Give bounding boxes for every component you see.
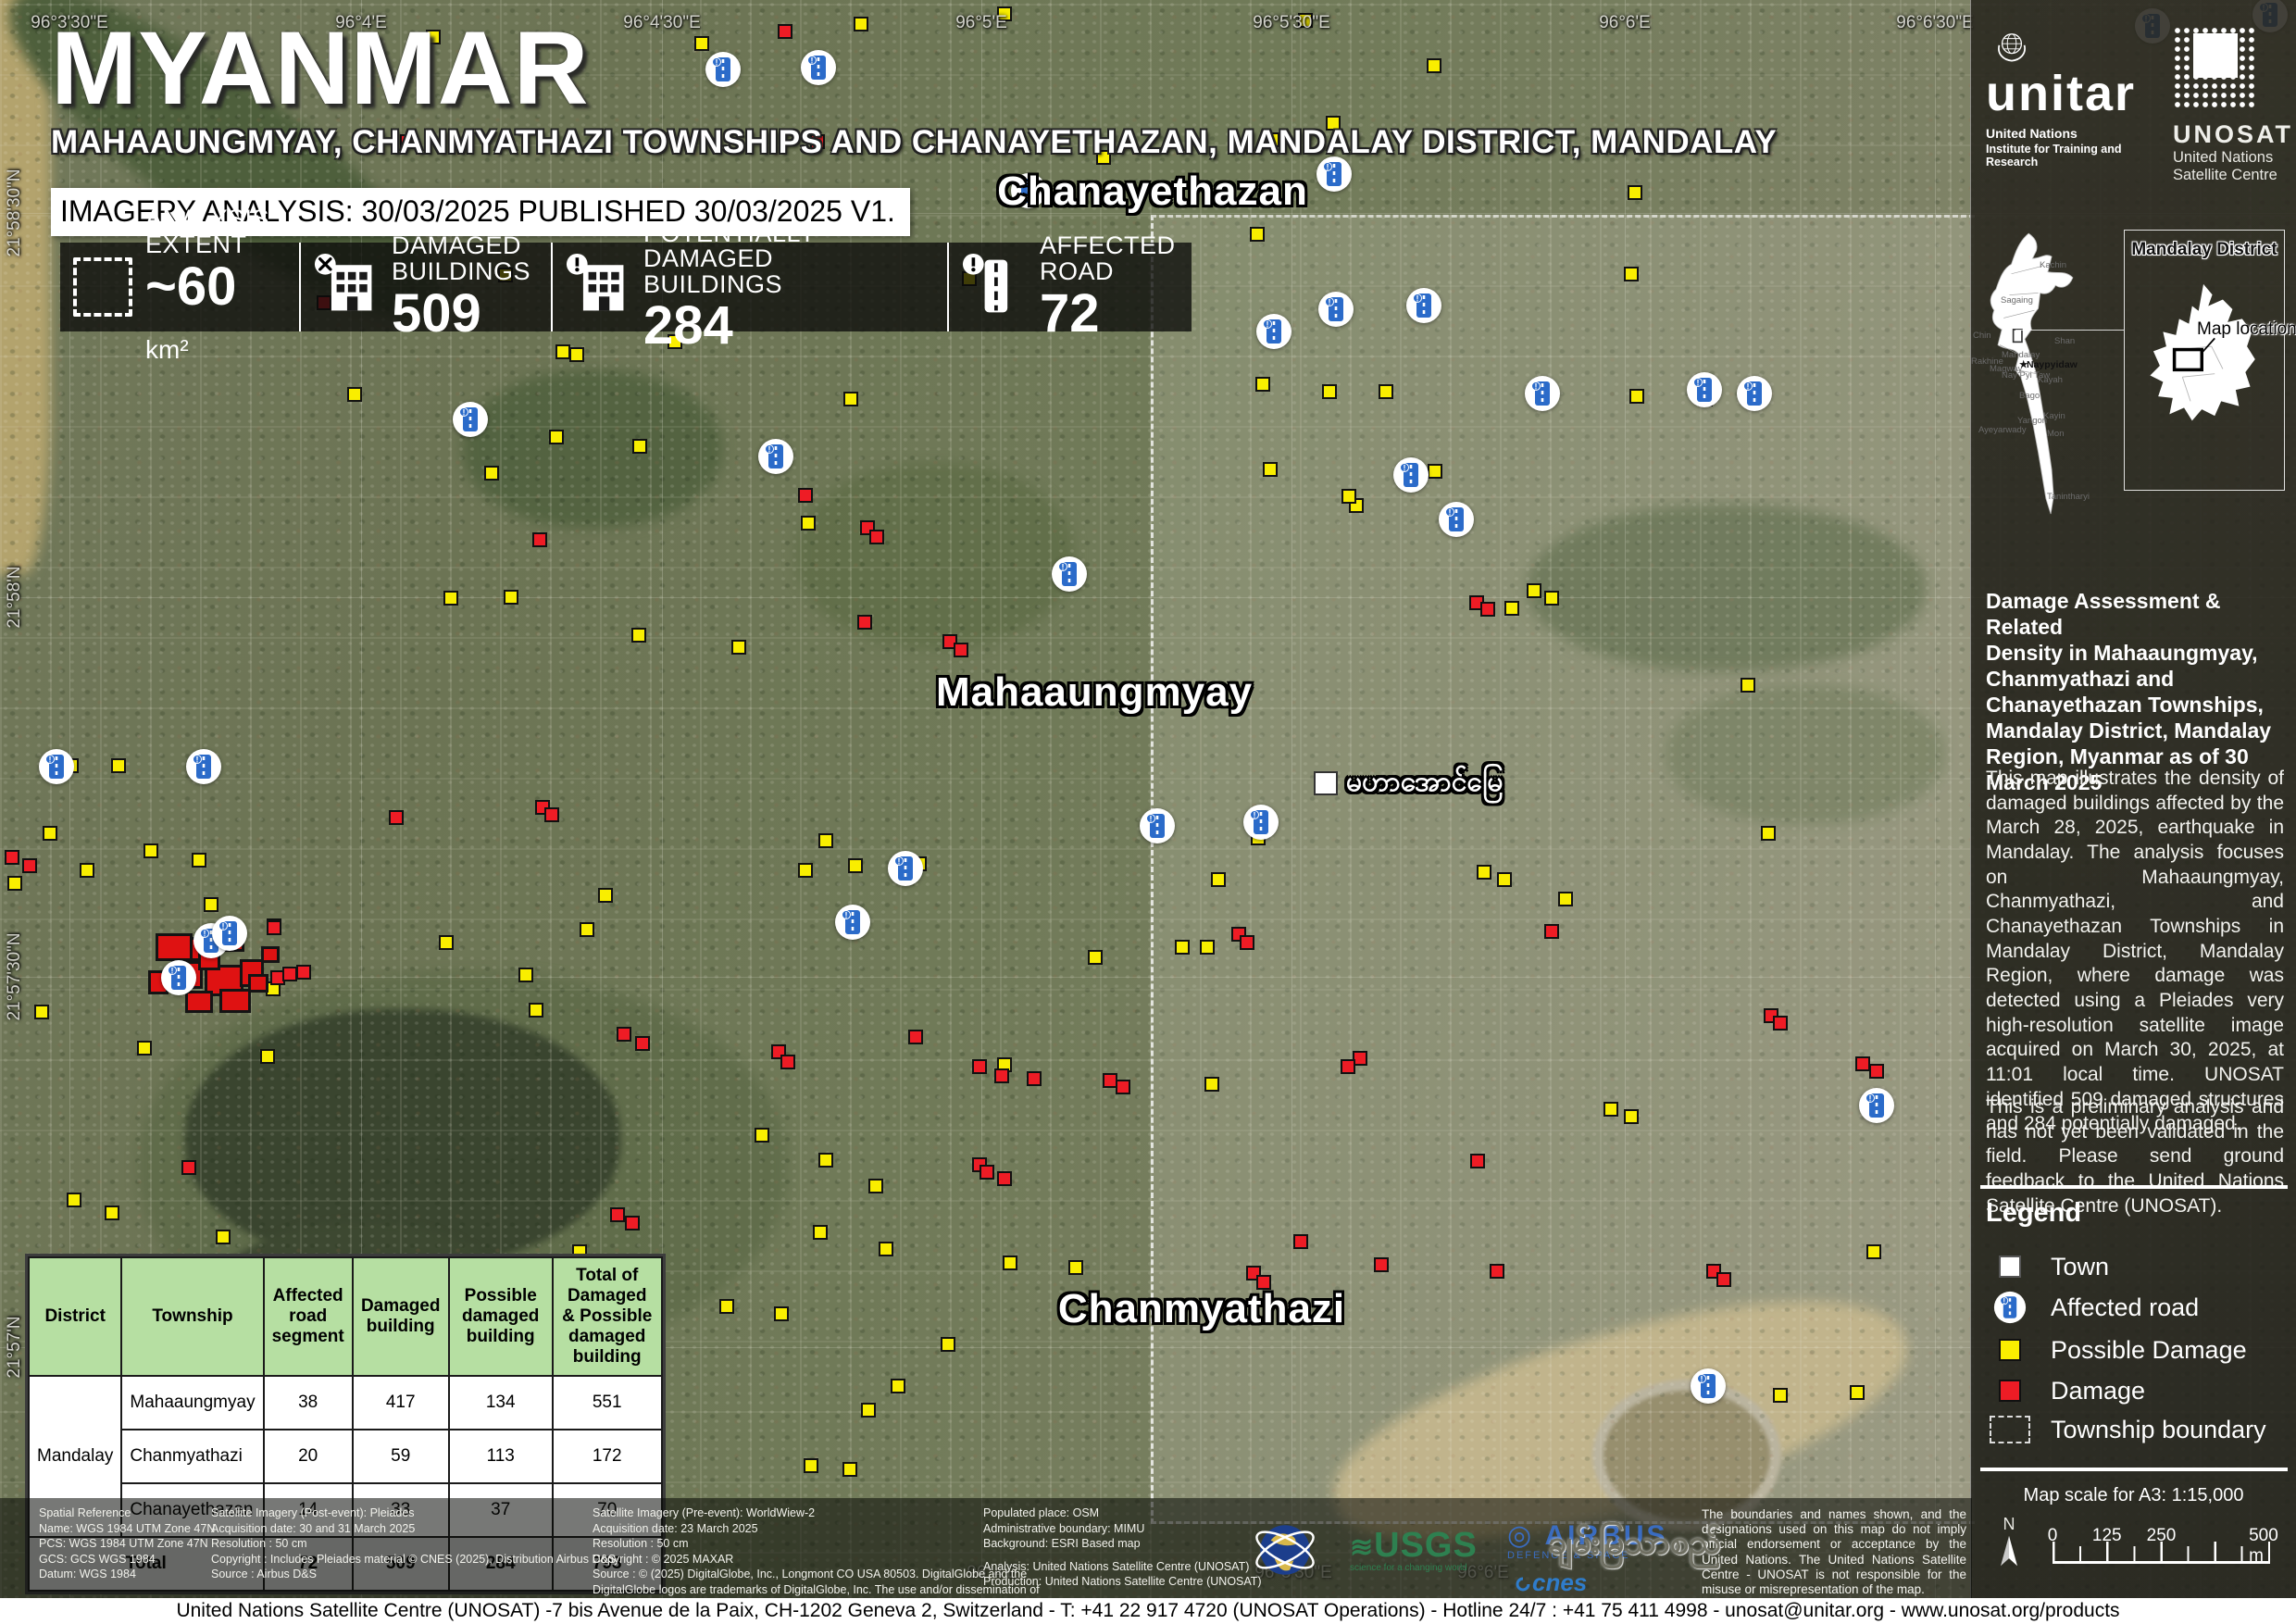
region-label: Tanintharyi <box>2047 492 2090 502</box>
stat-value: ~60 km² <box>145 260 286 368</box>
stat-label: EXTENT <box>145 232 286 258</box>
stats-bar: ANALYSIS EXTENT ~60 km² DAMAGED BUILDING… <box>60 243 1192 331</box>
credit-line <box>983 1552 1391 1559</box>
damage-marker <box>5 850 19 865</box>
legend-label: Possible Damage <box>2051 1336 2247 1365</box>
svg-text:!: ! <box>2003 1297 2005 1305</box>
possible-damage-marker <box>719 1299 734 1314</box>
credit-column: Satellite Imagery (Post-event): Pleiades… <box>211 1505 577 1582</box>
region-label: Sagaing <box>2001 295 2033 306</box>
possible-damage-marker <box>484 466 499 481</box>
damage-marker <box>1480 602 1495 617</box>
disclaimer-text: The boundaries and names shown, and the … <box>1702 1507 1966 1597</box>
stat-label: ROAD <box>1040 259 1176 285</box>
possible-damage-marker <box>1322 384 1337 399</box>
stat-analysis-extent: ANALYSIS EXTENT ~60 km² <box>60 243 299 331</box>
damage-marker <box>997 1171 1012 1186</box>
affected-road-marker: ! <box>1686 371 1723 408</box>
credit-column: Spatial ReferenceName: WGS 1984 UTM Zone… <box>39 1505 206 1582</box>
svg-text:!: ! <box>1404 464 1406 473</box>
cnes-logo: cnes <box>1514 1568 1587 1597</box>
region-label: Kayin <box>2043 411 2065 421</box>
damage-marker <box>267 920 281 935</box>
affected-road-marker: ! <box>1392 456 1429 493</box>
column-header: Township <box>121 1257 263 1376</box>
svg-text:!: ! <box>845 911 848 920</box>
svg-text:!: ! <box>1150 815 1153 824</box>
possible-damage-marker <box>1558 892 1573 906</box>
damage-marker <box>869 530 884 544</box>
credit-line: Source : Airbus D&S <box>211 1567 577 1582</box>
region-label: Mon <box>2047 429 2064 439</box>
legend-item-possible-damage: Possible Damage <box>1990 1331 2247 1368</box>
value-cell: 134 <box>449 1376 553 1430</box>
usgs-tagline: science for a changing world <box>1350 1563 1478 1573</box>
damage-cluster-polygon <box>156 933 193 961</box>
column-header: Damaged building <box>353 1257 449 1376</box>
possible-damage-marker <box>804 1458 818 1473</box>
un-emblem-icon <box>1990 26 2034 75</box>
possible-damage-marker <box>443 591 458 606</box>
damage-marker <box>1341 1059 1355 1074</box>
svg-text:!: ! <box>1329 298 1331 307</box>
affected-road-marker: ! <box>1524 375 1561 412</box>
unitar-line1: United Nations <box>1986 126 2162 141</box>
possible-damage-marker <box>204 897 218 912</box>
possible-damage-marker <box>798 863 813 878</box>
burmese-place-watermark: ချမ်းမြသာစည် <box>1548 1520 1721 1570</box>
affected-road-marker: ! <box>211 915 248 952</box>
damage-marker <box>1773 1016 1788 1031</box>
map-scale-label: Map scale for A3: 1:15,000 <box>1971 1485 2296 1506</box>
damage-marker <box>980 1165 994 1180</box>
svg-text:!: ! <box>463 408 466 418</box>
possible-damage-marker <box>891 1379 905 1393</box>
damage-marker <box>532 532 547 547</box>
damage-marker <box>857 615 872 630</box>
damage-marker <box>617 1027 631 1042</box>
value-cell: 113 <box>449 1430 553 1483</box>
possible-damage-marker <box>216 1230 231 1244</box>
column-header: Total of Damaged & Possible damaged buil… <box>553 1257 662 1376</box>
credit-line: Resolution : 50 cm <box>211 1536 577 1552</box>
possible-damage-marker <box>842 1462 857 1477</box>
legend-label: Affected road <box>2051 1293 2199 1322</box>
damage-marker <box>1116 1080 1130 1094</box>
stat-value: 72 <box>1040 287 1176 341</box>
affected-road-marker: ! <box>1255 313 1292 350</box>
svg-text:!: ! <box>49 756 52 765</box>
damage-marker <box>1293 1234 1308 1249</box>
damage-marker <box>780 1055 795 1069</box>
damage-cluster-polygon <box>219 989 251 1013</box>
township-cell: Chanmyathazi <box>121 1430 263 1483</box>
district-inset-map: Mandalay District Map location <box>2124 230 2285 491</box>
legend-item-damage: Damage <box>1990 1372 2145 1409</box>
damage-marker <box>1716 1272 1731 1287</box>
possible-damage-marker <box>1477 865 1491 880</box>
possible-damage-marker <box>43 826 57 841</box>
township-boundary-swatch <box>1990 1416 2030 1443</box>
svg-text:!: ! <box>1062 563 1065 572</box>
credit-line: Administrative boundary: MIMU <box>983 1521 1391 1537</box>
table-row: Chanmyathazi 20 59 113 172 <box>29 1430 662 1483</box>
possible-damage-marker <box>1544 591 1559 606</box>
possible-damage-marker <box>941 1337 955 1352</box>
town-swatch <box>1999 1255 2021 1278</box>
graticule-line <box>1291 0 1292 1624</box>
possible-damage-marker <box>879 1242 893 1256</box>
svg-text:!: ! <box>196 756 199 765</box>
possible-damage-marker <box>861 1403 876 1418</box>
svg-text:!: ! <box>1747 382 1750 392</box>
affected-road-marker: ! <box>1690 1368 1727 1405</box>
damage-marker <box>296 965 311 980</box>
stat-value: 509 <box>392 287 530 341</box>
possible-damage-marker <box>1527 583 1541 598</box>
svg-text:!: ! <box>222 922 225 931</box>
graticule-line <box>1935 0 1936 1624</box>
possible-damage-marker <box>598 888 613 903</box>
legend-item-township-boundary: Township boundary <box>1990 1411 2266 1448</box>
page-title: MYANMAR <box>51 17 1777 120</box>
svg-text:!: ! <box>171 967 174 976</box>
stat-damaged-buildings: DAMAGED BUILDINGS 509 <box>299 243 551 331</box>
possible-damage-marker <box>755 1128 769 1143</box>
possible-damage-marker <box>1497 872 1512 887</box>
capital-star-icon: ★ <box>2019 359 2028 370</box>
credit-line: Spatial Reference <box>39 1505 206 1521</box>
damage-marker <box>181 1160 196 1175</box>
affected-road-marker: ! <box>452 401 489 438</box>
unitar-logo: unitar United Nations Institute for Trai… <box>1986 69 2162 169</box>
un-globe-logo <box>1252 1517 1318 1588</box>
possible-damage-marker <box>1761 826 1776 841</box>
possible-damage-marker <box>1629 389 1644 404</box>
info-panel: unitar United Nations Institute for Trai… <box>1970 0 2296 1598</box>
graticule-line <box>1625 0 1626 1624</box>
unosat-line1: United Nations <box>2173 149 2290 167</box>
potentially-damaged-building-icon <box>566 253 630 322</box>
possible-damage-marker <box>80 863 94 878</box>
credit-line: Acquisition date: 30 and 31 March 2025 <box>211 1521 577 1537</box>
stat-label: AFFECTED <box>1040 233 1176 259</box>
north-label: N <box>1999 1515 2019 1534</box>
report-title: Damage Assessment & Related Density in M… <box>1986 588 2284 795</box>
value-cell: 172 <box>553 1430 662 1483</box>
affected-road-marker: ! <box>834 904 871 941</box>
possible-damage-marker <box>260 1049 275 1064</box>
possible-damage-marker <box>555 344 570 359</box>
damage-marker <box>1855 1056 1870 1071</box>
affected-road-marker: ! <box>1736 375 1773 412</box>
longitude-label: 96°6'30"E <box>1896 13 1973 33</box>
possible-damage-marker <box>1624 1109 1639 1124</box>
country-inset-labels: KachinSagaingChinShanMandalayMagwayNaypy… <box>1971 218 2101 556</box>
cnes-wordmark: cnes <box>1514 1568 1587 1596</box>
graticule-line <box>0 597 2296 598</box>
credit-column: Populated place: OSMAdministrative bound… <box>983 1505 1391 1590</box>
affected-road-marker: ! <box>160 959 197 996</box>
latitude-label: 21°58'N <box>5 566 25 628</box>
value-cell: 417 <box>353 1376 449 1430</box>
possible-damage-marker <box>580 922 594 937</box>
possible-damage-marker <box>1088 950 1103 965</box>
damage-marker <box>908 1030 923 1044</box>
damage-marker <box>1869 1064 1884 1079</box>
credit-line: GCS: GCS WGS 1984 <box>39 1552 206 1568</box>
affected-road-marker: ! <box>1051 556 1088 593</box>
latitude-label: 21°57'30"N <box>5 932 25 1020</box>
table-row: Mandalay Mahaaungmyay 38 417 134 551 <box>29 1376 662 1430</box>
legend-title: Legend <box>1986 1198 2081 1229</box>
credit-line: Acquisition date: 23 March 2025 <box>593 1521 977 1537</box>
damage-cluster-polygon <box>261 946 280 963</box>
damage-marker <box>1027 1071 1042 1086</box>
inset-link-line <box>2015 330 2124 331</box>
damage-cluster-polygon <box>248 974 268 993</box>
possible-damage-marker <box>1504 601 1519 616</box>
region-label: Chin <box>1973 331 1991 341</box>
legend-label: Town <box>2051 1253 2109 1281</box>
possible-damage-marker <box>347 387 362 402</box>
possible-damage-marker <box>848 858 863 873</box>
map-location-label: Map location <box>2197 319 2296 340</box>
possible-damage-marker <box>1741 678 1755 693</box>
possible-damage-marker <box>818 1153 833 1168</box>
possible-damage-marker <box>1204 1077 1219 1092</box>
stat-label: DAMAGED <box>392 233 530 259</box>
possible-damage-marker <box>1624 267 1639 281</box>
damage-marker <box>635 1036 650 1051</box>
stat-label: BUILDINGS <box>643 272 934 298</box>
possible-damage-marker <box>843 392 858 406</box>
damage-marker <box>1490 1264 1504 1279</box>
region-label: Naypyidaw <box>2027 359 2078 370</box>
stat-label: ANALYSIS <box>145 206 286 232</box>
possible-damage-marker <box>569 347 584 362</box>
possible-damage-marker <box>137 1041 152 1056</box>
possible-damage-swatch <box>1999 1339 2021 1361</box>
value-cell: 59 <box>353 1430 449 1483</box>
stat-affected-road: AFFECTED ROAD 72 <box>947 243 1190 331</box>
possible-damage-marker <box>801 516 816 531</box>
analysis-extent-icon <box>73 257 132 317</box>
column-header: District <box>29 1257 121 1376</box>
title-block: MYANMAR MAHAAUNGMYAY, CHANMYATHAZI TOWNS… <box>51 17 1777 236</box>
stat-potentially-damaged: POTENTIALLY DAMAGED BUILDINGS 284 <box>551 243 947 331</box>
stat-label: BUILDINGS <box>392 259 530 285</box>
possible-damage-marker <box>632 439 647 454</box>
district-inset-title: Mandalay District <box>2125 240 2284 260</box>
credit-line: Name: WGS 1984 UTM Zone 47N <box>39 1521 206 1537</box>
credit-line: Satellite Imagery (Pre-event): WorldWiew… <box>593 1505 977 1521</box>
possible-damage-marker <box>1866 1244 1881 1259</box>
damage-marker <box>1544 924 1559 939</box>
damage-marker <box>625 1216 640 1230</box>
credit-line: PCS: WGS 1984 UTM Zone 47N <box>39 1536 206 1552</box>
damage-marker <box>22 858 37 873</box>
svg-text:!: ! <box>1869 1094 1872 1104</box>
damaged-building-icon <box>314 253 379 322</box>
possible-damage-marker <box>192 853 206 868</box>
possible-damage-marker <box>818 833 833 848</box>
affected-road-marker: ! <box>1858 1087 1895 1124</box>
affected-road-marker: ! <box>1242 804 1279 841</box>
latitude-label: 21°58'30"N <box>5 169 25 256</box>
possible-damage-marker <box>67 1193 81 1207</box>
credit-line: Copyright : Includes Pleiades material ©… <box>211 1552 577 1568</box>
legend-item-affected-road: ! Affected road <box>1990 1289 2199 1326</box>
svg-text:!: ! <box>1267 320 1269 330</box>
possible-damage-marker <box>1341 489 1356 504</box>
svg-text:!: ! <box>204 930 206 939</box>
credit-line: Background: ESRI Based map <box>983 1536 1391 1552</box>
affected-road-marker: ! <box>38 748 75 785</box>
region-label: Bago <box>2019 391 2040 401</box>
latitude-label: 21°57'N <box>5 1316 25 1378</box>
damage-marker <box>389 810 404 825</box>
credit-line: Populated place: OSM <box>983 1505 1391 1521</box>
possible-damage-marker <box>7 876 22 891</box>
region-label: Shan <box>2054 336 2075 346</box>
damage-marker <box>994 1068 1009 1083</box>
damage-marker <box>1240 935 1254 950</box>
possible-damage-marker <box>631 628 646 643</box>
page-subtitle: MAHAAUNGMYAY, CHANMYATHAZI TOWNSHIPS AND… <box>51 124 1777 161</box>
possible-damage-marker <box>731 640 746 655</box>
affected-road-icon: ! <box>1990 1291 2030 1324</box>
credit-line: Datum: WGS 1984 <box>39 1567 206 1582</box>
damage-marker <box>954 643 968 657</box>
credit-line: Source : © (2025) DigitalGlobe, Inc., Lo… <box>593 1567 977 1582</box>
divider <box>1980 1468 2288 1471</box>
township-cell: Mahaaungmyay <box>121 1376 263 1430</box>
possible-damage-marker <box>1211 872 1226 887</box>
damage-swatch <box>1999 1380 2021 1402</box>
stat-value: 284 <box>643 299 934 353</box>
possible-damage-marker <box>439 935 454 950</box>
possible-damage-marker <box>1003 1255 1017 1270</box>
region-label: Ayeyarwady <box>1978 425 2027 435</box>
value-cell: 551 <box>553 1376 662 1430</box>
damage-marker <box>610 1207 625 1222</box>
possible-damage-marker <box>868 1179 883 1193</box>
possible-damage-marker <box>111 758 126 773</box>
svg-text:!: ! <box>1416 294 1419 304</box>
damage-marker <box>1374 1257 1389 1272</box>
column-header: Affected road segment <box>264 1257 353 1376</box>
map-page: !!!!!!!!!!!!!!!!!!!!!!!!!!!! Chanayethaz… <box>0 0 2296 1624</box>
usgs-logo: ≋USGS science for a changing world <box>1350 1528 1478 1573</box>
svg-text:!: ! <box>1701 1375 1703 1384</box>
affected-road-marker: ! <box>185 748 222 785</box>
possible-damage-marker <box>549 430 564 444</box>
unosat-line2: Satellite Centre <box>2173 167 2290 184</box>
svg-text:!: ! <box>768 445 771 455</box>
possible-damage-marker <box>774 1306 789 1321</box>
possible-damage-marker <box>518 968 533 982</box>
column-header: Possible damaged building <box>449 1257 553 1376</box>
north-arrow: N <box>1999 1515 2019 1572</box>
possible-damage-marker <box>529 1003 543 1018</box>
possible-damage-marker <box>143 843 158 858</box>
credit-line: Analysis: United Nations Satellite Centr… <box>983 1559 1391 1575</box>
possible-damage-marker <box>34 1005 49 1019</box>
unosat-dots-icon <box>2173 26 2258 111</box>
possible-damage-marker <box>1773 1388 1788 1403</box>
affected-road-icon <box>962 253 1027 322</box>
damage-marker <box>972 1059 987 1074</box>
possible-damage-marker <box>1068 1260 1083 1275</box>
township-label: Chanmyathazi <box>1058 1286 1345 1332</box>
divider <box>1980 1185 2288 1189</box>
usgs-wordmark: ≋USGS <box>1350 1528 1478 1563</box>
graticule-line <box>0 977 2296 978</box>
town-marker <box>1314 771 1338 795</box>
damage-marker <box>544 807 559 822</box>
unitar-line2: Institute for Training and Research <box>1986 143 2162 169</box>
possible-damage-marker <box>813 1225 828 1240</box>
svg-text:!: ! <box>1697 379 1700 388</box>
possible-damage-marker <box>1428 464 1442 479</box>
town-name-label: မဟာအောင်မြေ <box>1346 763 1504 805</box>
affected-road-marker: ! <box>1139 807 1176 844</box>
unitar-wordmark: unitar <box>1986 69 2162 119</box>
affected-road-marker: ! <box>887 850 924 887</box>
damage-marker <box>1470 1154 1485 1168</box>
possible-damage-marker <box>1175 940 1190 955</box>
svg-text:!: ! <box>1535 382 1538 392</box>
possible-damage-marker <box>1200 940 1215 955</box>
credit-line: DigitalGlobe logos are trademarks of Dig… <box>593 1582 977 1598</box>
damage-marker <box>798 488 813 503</box>
possible-damage-marker <box>1603 1102 1618 1117</box>
region-label: Rakhine <box>1971 356 2003 367</box>
unosat-logo: UNOSAT United Nations Satellite Centre <box>2173 26 2290 184</box>
damage-marker <box>282 967 297 981</box>
legend-label: Township boundary <box>2051 1416 2266 1444</box>
report-paragraph-1: This map illustrates the density of dama… <box>1986 767 2284 1137</box>
value-cell: 38 <box>264 1376 353 1430</box>
myanmar-inset-map: KachinSagaingChinShanMandalayMagwayNaypy… <box>1971 218 2101 556</box>
credit-line: Satellite Imagery (Post-event): Pleiades <box>211 1505 577 1521</box>
legend-label: Damage <box>2051 1377 2145 1405</box>
stat-label: POTENTIALLY DAMAGED <box>643 221 934 272</box>
svg-text:!: ! <box>1254 811 1256 820</box>
region-label: Kayah <box>2038 375 2063 385</box>
credit-line: Resolution : 50 cm <box>593 1536 977 1552</box>
footer-contact-bar: United Nations Satellite Centre (UNOSAT)… <box>0 1598 2296 1624</box>
scale-bar: 0 125 250 500 m <box>2053 1526 2270 1564</box>
affected-road-marker: ! <box>1317 291 1354 328</box>
possible-damage-marker <box>1263 462 1278 477</box>
svg-text:!: ! <box>1449 508 1452 518</box>
svg-text:!: ! <box>898 857 901 867</box>
credit-line: Production: United Nations Satellite Cen… <box>983 1574 1391 1590</box>
possible-damage-marker <box>105 1206 119 1220</box>
affected-road-marker: ! <box>757 438 794 475</box>
credit-line: Copyright : © 2025 MAXAR <box>593 1552 977 1568</box>
possible-damage-marker <box>1379 384 1393 399</box>
township-label: Mahaaungmyay <box>936 669 1253 716</box>
value-cell: 20 <box>264 1430 353 1483</box>
unosat-wordmark: UNOSAT <box>2173 120 2290 149</box>
affected-road-marker: ! <box>1438 501 1475 538</box>
possible-damage-marker <box>1850 1385 1865 1400</box>
scale-ticks <box>2053 1546 2270 1564</box>
region-label: Kachin <box>2040 260 2066 270</box>
